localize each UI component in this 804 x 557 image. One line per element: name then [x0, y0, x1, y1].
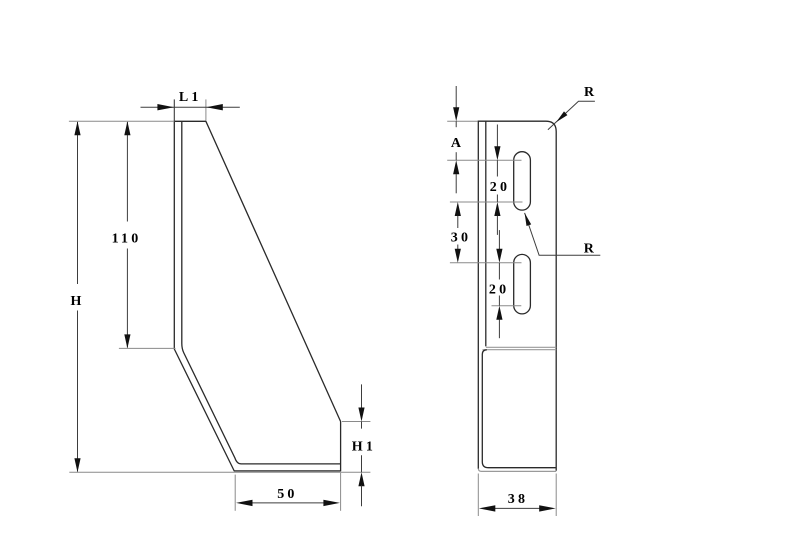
- svg-text:L1: L1: [179, 90, 202, 105]
- svg-text:38: 38: [508, 492, 528, 507]
- svg-text:R: R: [584, 242, 597, 257]
- svg-text:R: R: [584, 85, 597, 100]
- svg-text:110: 110: [112, 232, 142, 247]
- svg-text:A: A: [451, 136, 464, 151]
- svg-text:H: H: [70, 294, 84, 309]
- svg-text:20: 20: [489, 283, 509, 298]
- svg-text:30: 30: [451, 231, 471, 246]
- svg-text:H1: H1: [352, 439, 376, 454]
- svg-text:50: 50: [277, 487, 297, 502]
- svg-text:20: 20: [490, 180, 510, 195]
